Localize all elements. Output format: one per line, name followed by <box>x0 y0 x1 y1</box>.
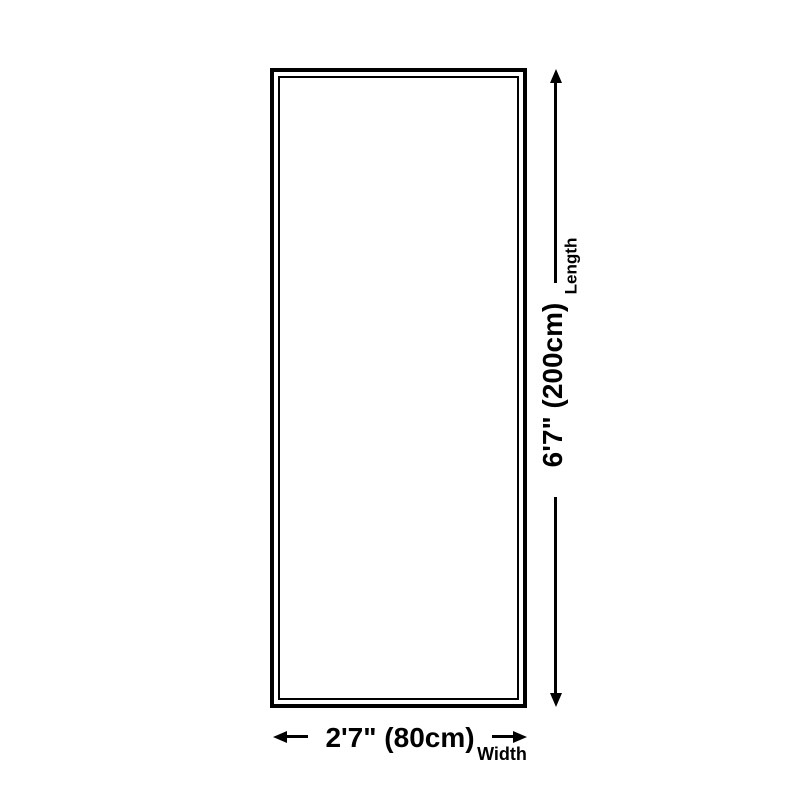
length-dimension-line-upper <box>554 81 557 283</box>
length-dimension-line-lower <box>554 497 557 693</box>
arrow-right-icon <box>513 731 527 743</box>
width-value: 2'7" (80cm) <box>325 724 474 752</box>
rug-inner-border <box>278 76 519 700</box>
length-value: 6'7" (200cm) <box>539 303 567 468</box>
rug-dimension-diagram: Length 6'7" (200cm) 2'7" (80cm) Width <box>0 0 800 800</box>
width-dimension-line-right <box>492 735 513 738</box>
width-dimension-line-left <box>287 735 308 738</box>
arrow-down-icon <box>550 693 562 707</box>
arrow-left-icon <box>273 731 287 743</box>
width-label: Width <box>477 745 527 763</box>
rug-outline <box>270 68 527 708</box>
length-label: Length <box>563 238 580 295</box>
